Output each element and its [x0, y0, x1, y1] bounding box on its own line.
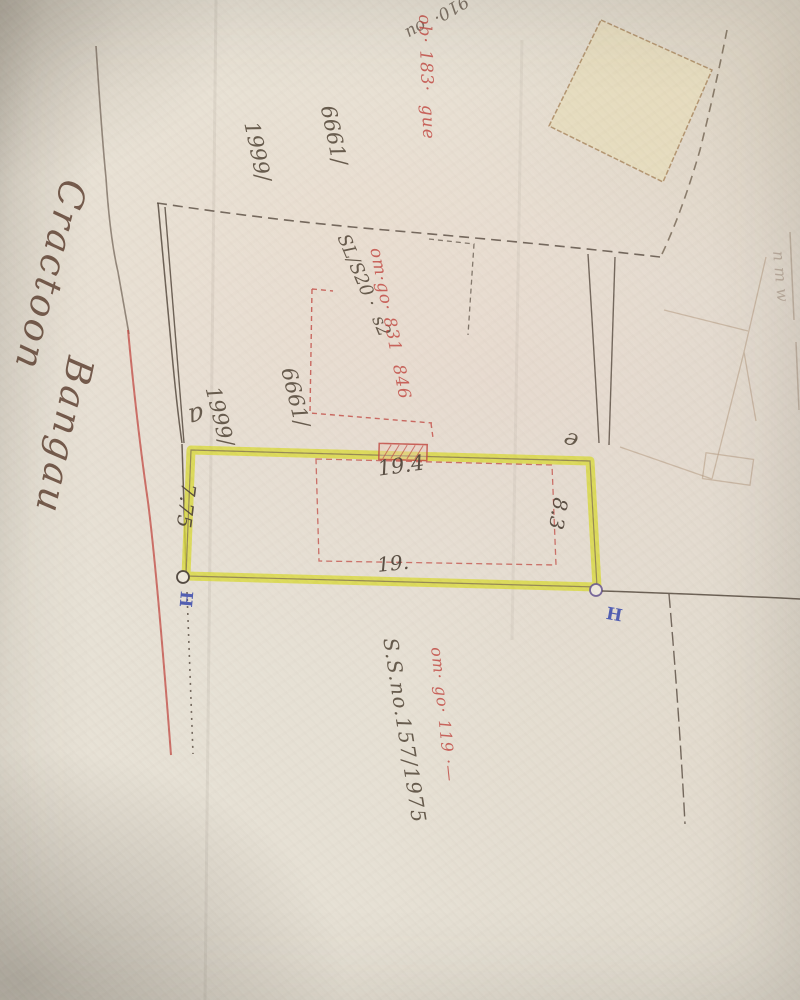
- dark-dashed-parcel-upper: [429, 239, 474, 335]
- path-edge-line-west: [588, 254, 599, 443]
- note-line: 1999/: [199, 384, 239, 449]
- boundary-dotted-continuation: [187, 592, 193, 754]
- survey-point-circle-left: [177, 571, 189, 583]
- southeast-dashed-line: [669, 594, 685, 824]
- survey-point-circle-right: [590, 584, 602, 596]
- note-red-stamp-top: ob· 183· gue: [413, 14, 439, 140]
- note-line: 6661/: [315, 103, 353, 168]
- survey-mark-h-left: H: [173, 590, 196, 608]
- road-red-edge-line: [128, 330, 171, 755]
- survey-plan-photo: Cractoon Bangau a e 19.4 8.3 19. 7.75 91…: [0, 0, 800, 1000]
- note-line: 6661/: [276, 365, 316, 430]
- north-boundary-line: [157, 203, 660, 257]
- south-boundary-line: [602, 591, 800, 599]
- path-edge-line-east: [609, 257, 615, 445]
- note-line: 1999/: [238, 119, 276, 184]
- red-dashed-inner-rect: [316, 459, 556, 565]
- paper-crease: [512, 40, 522, 640]
- building-footprint-north: [549, 20, 712, 182]
- building-small-east: [702, 453, 753, 485]
- right-edge-marks-line: [790, 232, 799, 410]
- road-outer-edge-line: [96, 46, 129, 334]
- building-outline-east: [620, 257, 766, 479]
- dimension-bottom: 19.: [376, 550, 410, 578]
